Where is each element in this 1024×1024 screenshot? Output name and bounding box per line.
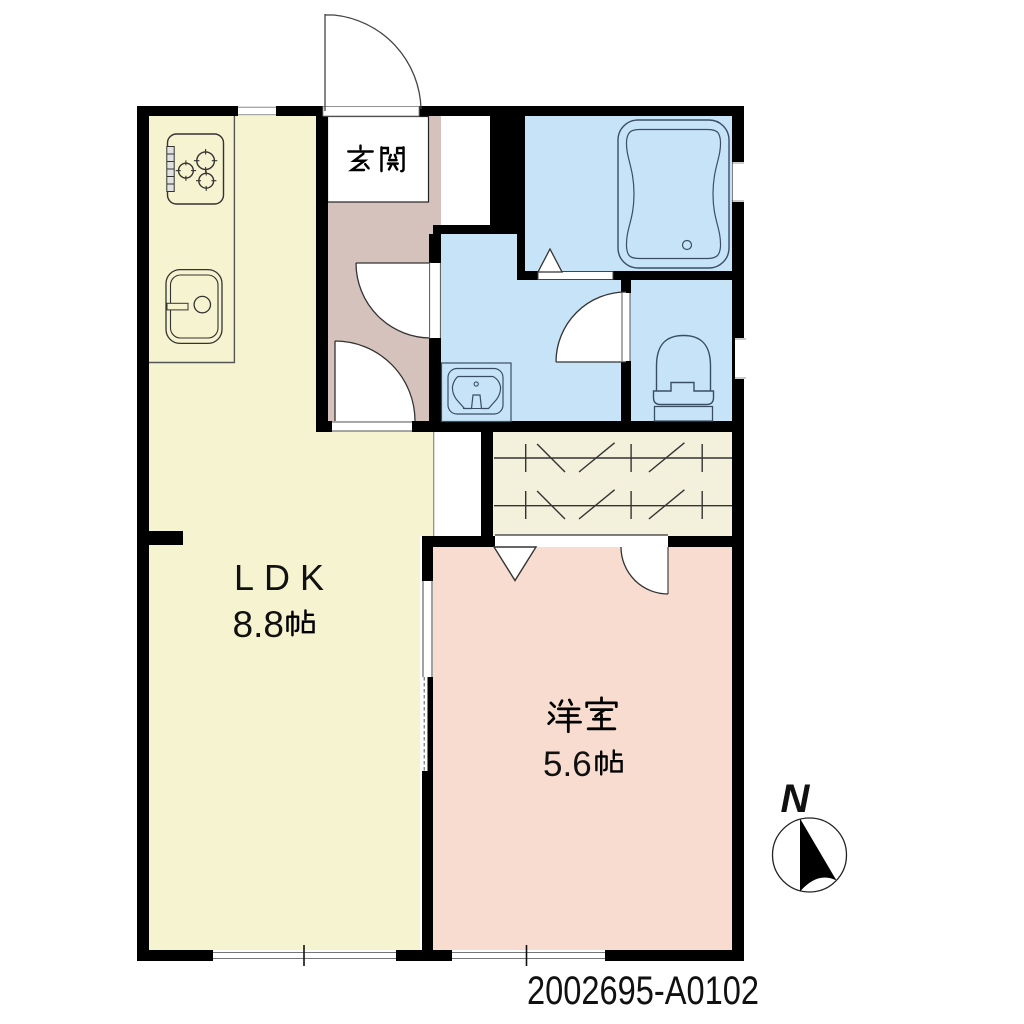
svg-text:2002695-A0102: 2002695-A0102 [527, 969, 759, 1013]
svg-text:8.8: 8.8 [233, 604, 284, 645]
svg-text:5.6: 5.6 [543, 745, 592, 784]
svg-text:N: N [781, 777, 811, 821]
svg-text:LDK: LDK [234, 557, 324, 598]
